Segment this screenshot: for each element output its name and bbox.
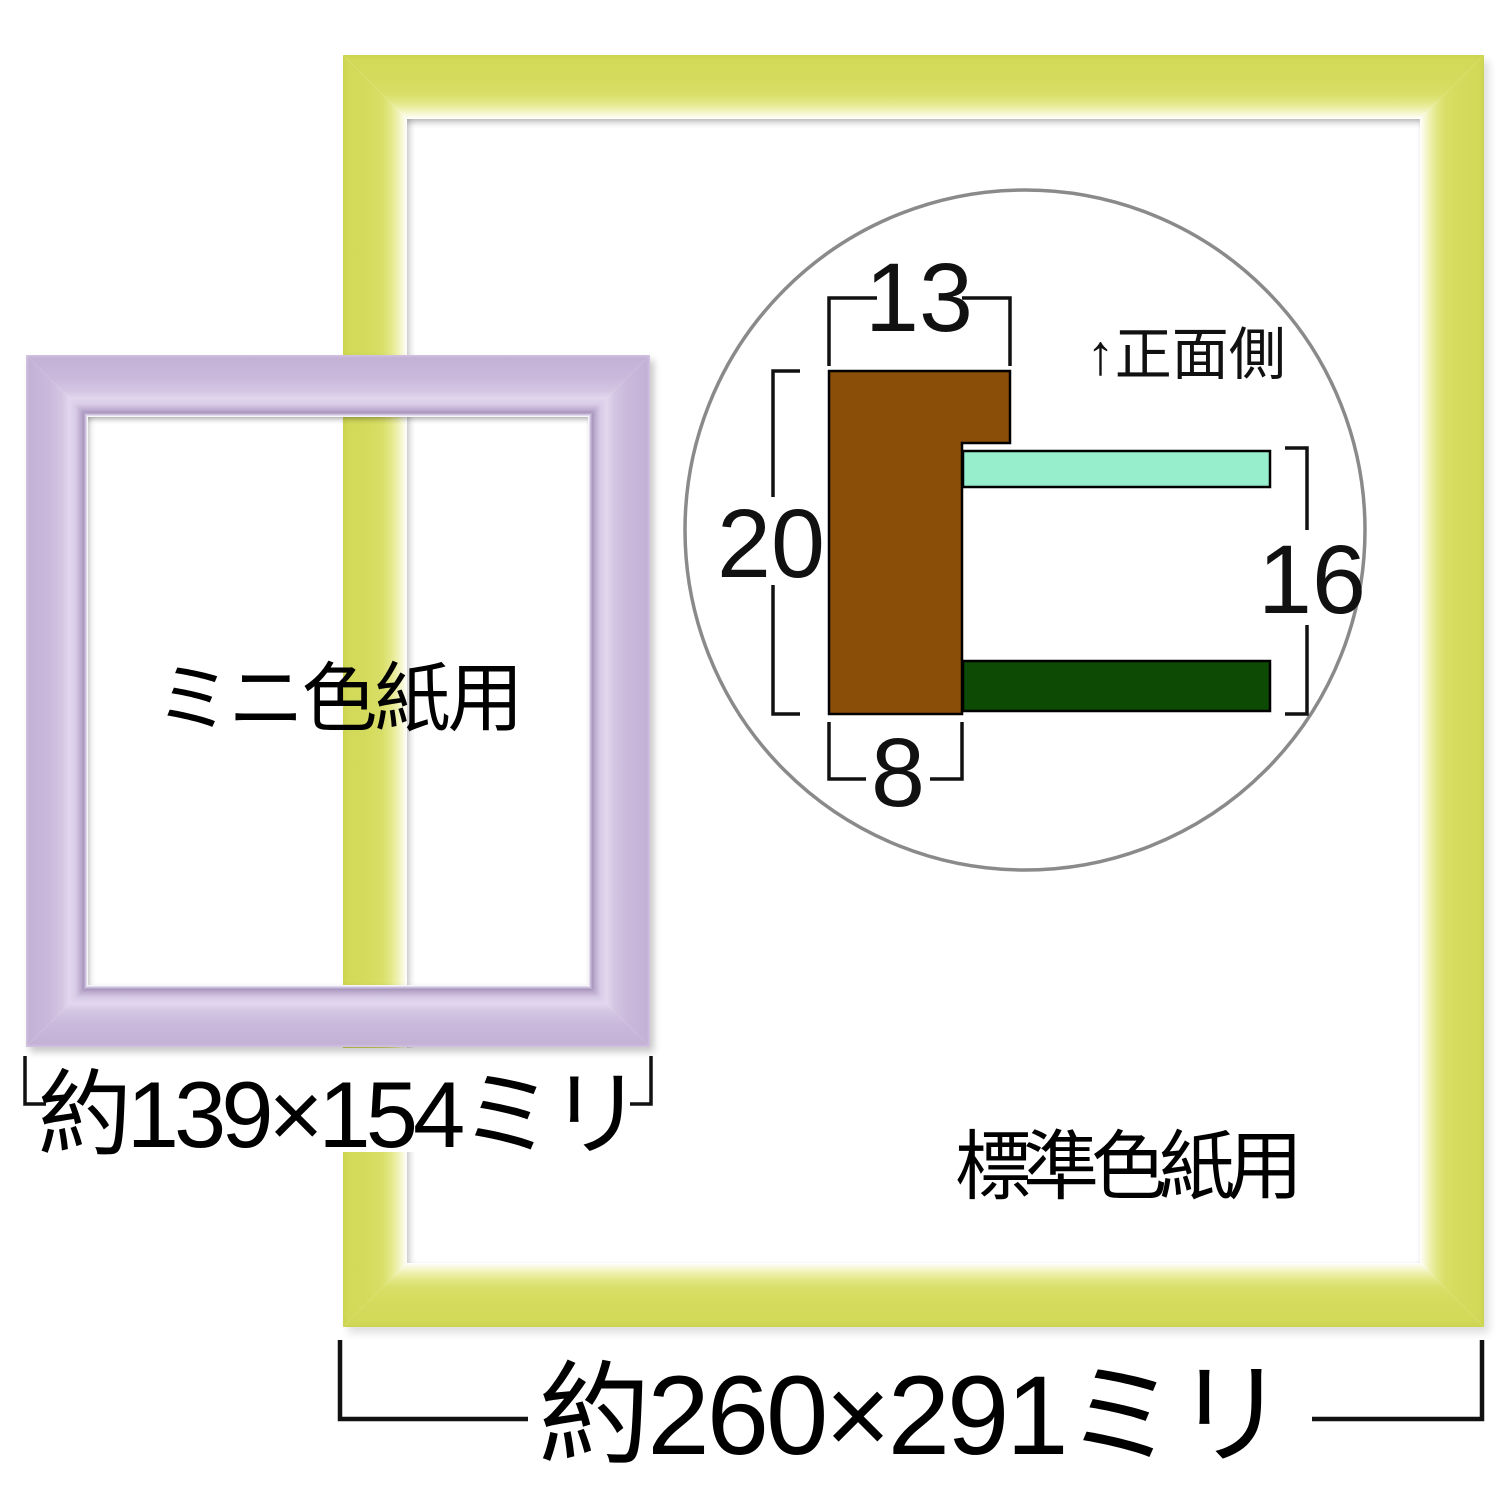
mini-frame-top-bar	[26, 355, 650, 417]
dim-16-label: 16	[1258, 525, 1366, 634]
product-image: 13 20 8 16 ↑正面側 標準色紙用 ミニ色紙用 約139×154ミリ 約…	[0, 0, 1500, 1500]
standard-frame-dimension: 約260×291ミリ	[340, 1360, 1482, 1472]
standard-frame-top-bar	[343, 55, 1484, 119]
standard-frame-bottom-bar	[343, 1263, 1484, 1327]
mini-frame-left-bar	[26, 355, 88, 1047]
front-side-label: ↑正面側	[1086, 323, 1286, 387]
dim-8-label: 8	[871, 718, 925, 827]
back-board	[963, 661, 1270, 711]
standard-frame-label: 標準色紙用	[920, 1130, 1330, 1206]
mini-frame-bottom-bar	[26, 985, 650, 1047]
cross-section-diagram: 13 20 8 16 ↑正面側	[655, 160, 1395, 900]
mini-frame-dimension: 約139×154ミリ	[25, 1068, 651, 1162]
mini-frame-label: ミニ色紙用	[88, 662, 588, 738]
dim-20-label: 20	[717, 489, 825, 598]
standard-frame-right-bar	[1420, 55, 1484, 1327]
mini-frame-right-bar	[588, 355, 650, 1047]
dim-13-label: 13	[865, 243, 973, 352]
glass-sheet	[963, 451, 1270, 487]
